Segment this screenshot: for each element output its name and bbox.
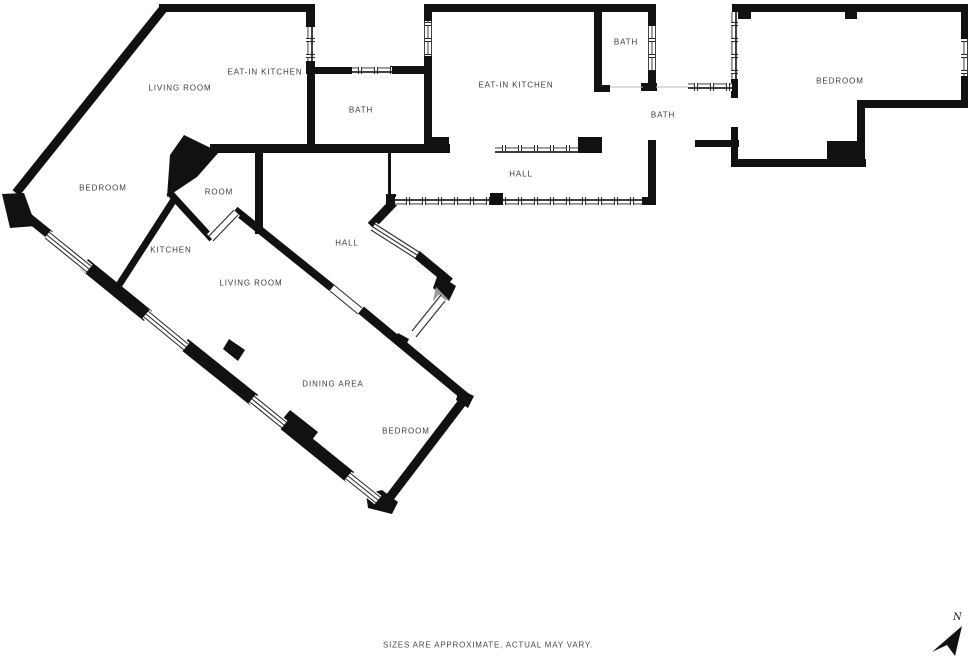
north-label: N — [953, 612, 962, 623]
room-label-bath-right: BATH — [651, 111, 675, 120]
room-label-kitchen: KITCHEN — [150, 246, 191, 255]
room-label-bath-top-middle: BATH — [614, 38, 638, 47]
disclaimer-text: SIZES ARE APPROXIMATE, ACTUAL MAY VARY. — [383, 641, 593, 650]
room-label-bedroom-left: BEDROOM — [79, 184, 127, 193]
floor-plan-page: LIVING ROOM EAT-IN KITCHEN BATH EAT-IN K… — [0, 0, 976, 664]
room-label-hall-main: HALL — [509, 170, 533, 179]
room-label-bath-upper-left: BATH — [349, 106, 373, 115]
floor-plan-drawing — [0, 0, 976, 664]
room-label-hall-lower: HALL — [335, 239, 359, 248]
room-label-room-small: ROOM — [205, 188, 234, 197]
room-label-bedroom-lower: BEDROOM — [382, 427, 430, 436]
room-label-living-room-upper: LIVING ROOM — [148, 84, 211, 93]
room-label-dining-area: DINING AREA — [302, 380, 363, 389]
room-label-living-room-lower: LIVING ROOM — [219, 279, 282, 288]
room-label-eat-in-kitchen-upper: EAT-IN KITCHEN — [227, 68, 302, 77]
room-label-eat-in-kitchen-middle: EAT-IN KITCHEN — [478, 81, 553, 90]
room-label-bedroom-right: BEDROOM — [816, 77, 864, 86]
north-arrow-icon — [932, 626, 962, 656]
